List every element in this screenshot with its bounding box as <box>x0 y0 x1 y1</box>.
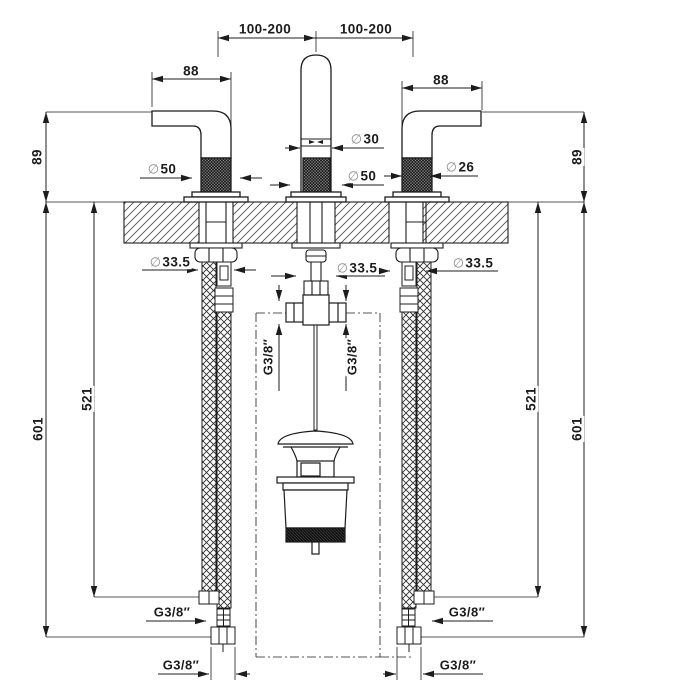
dim-handle-length-right-label: 88 <box>432 73 450 87</box>
diameter-value: 33.5 <box>349 260 377 275</box>
diameter-symbol: ∅ <box>337 260 349 275</box>
diameter-value: 50 <box>160 161 176 176</box>
pop-up-waste <box>277 431 354 554</box>
hose-left-outer <box>202 262 216 591</box>
dia-spout-tube-label: ∅30 <box>350 132 381 146</box>
lift-rod <box>314 325 317 430</box>
dia-handle-body-right-label: ∅26 <box>445 160 476 174</box>
thread-hose-elbow-right-label: G3/8″ <box>448 606 486 619</box>
spout <box>286 55 346 202</box>
thread-hose-elbow-left-label: G3/8″ <box>153 606 191 619</box>
dim-hose-outer-right-label: 601 <box>570 416 584 442</box>
dia-deck-hole-right-label: ∅33.5 <box>452 256 495 270</box>
hose-right-inner <box>402 312 416 608</box>
dim-span-left-label: 100-200 <box>238 22 292 36</box>
supply-hoses-right <box>397 262 434 652</box>
thread-hose-end-left-label: G3/8″ <box>162 659 200 672</box>
thread-tee-port-left-label: G3/8″ <box>262 338 275 376</box>
thread-tee-port-right-label: G3/8″ <box>346 338 359 376</box>
dim-span-right-label: 100-200 <box>339 22 393 36</box>
hose-left-inner <box>217 312 231 608</box>
faucet-installation-drawing: 100-200 100-200 88 88 89 89 521 601 521 … <box>0 0 700 700</box>
dim-handle-length-left-label: 88 <box>182 64 200 78</box>
diameter-value: 33.5 <box>162 254 190 269</box>
hose-end-left-nut <box>211 627 235 644</box>
countertop <box>124 202 508 243</box>
dim-hose-inner-right-label: 521 <box>524 386 538 412</box>
left-handle <box>152 111 248 202</box>
diameter-symbol: ∅ <box>348 168 360 183</box>
tee-fitting <box>286 295 346 325</box>
diameter-symbol: ∅ <box>150 254 162 269</box>
supply-hoses-left <box>199 262 235 652</box>
diameter-symbol: ∅ <box>148 161 160 176</box>
diameter-value: 30 <box>363 131 379 146</box>
dia-deck-hole-left-label: ∅33.5 <box>149 255 192 269</box>
diameter-value: 33.5 <box>465 255 493 270</box>
dim-hose-outer-left-label: 601 <box>31 416 45 442</box>
right-handle <box>385 111 481 202</box>
diameter-symbol: ∅ <box>351 131 363 146</box>
thread-hose-end-right-label: G3/8″ <box>439 659 477 672</box>
dim-height-right-label: 89 <box>570 148 584 166</box>
dim-height-left-label: 89 <box>30 148 44 166</box>
dim-hose-inner-left-label: 521 <box>80 386 94 412</box>
hose-right-outer <box>417 262 431 591</box>
hose-end-right-nut <box>397 627 421 644</box>
spout-shank <box>292 202 340 295</box>
diameter-value: 50 <box>360 168 376 183</box>
dia-spout-base-label: ∅50 <box>347 169 378 183</box>
diameter-value: 26 <box>458 159 474 174</box>
dia-deck-hole-center-label: ∅33.5 <box>336 261 379 275</box>
dia-handle-base-left-label: ∅50 <box>147 162 178 176</box>
diameter-symbol: ∅ <box>453 255 465 270</box>
diameter-symbol: ∅ <box>446 159 458 174</box>
